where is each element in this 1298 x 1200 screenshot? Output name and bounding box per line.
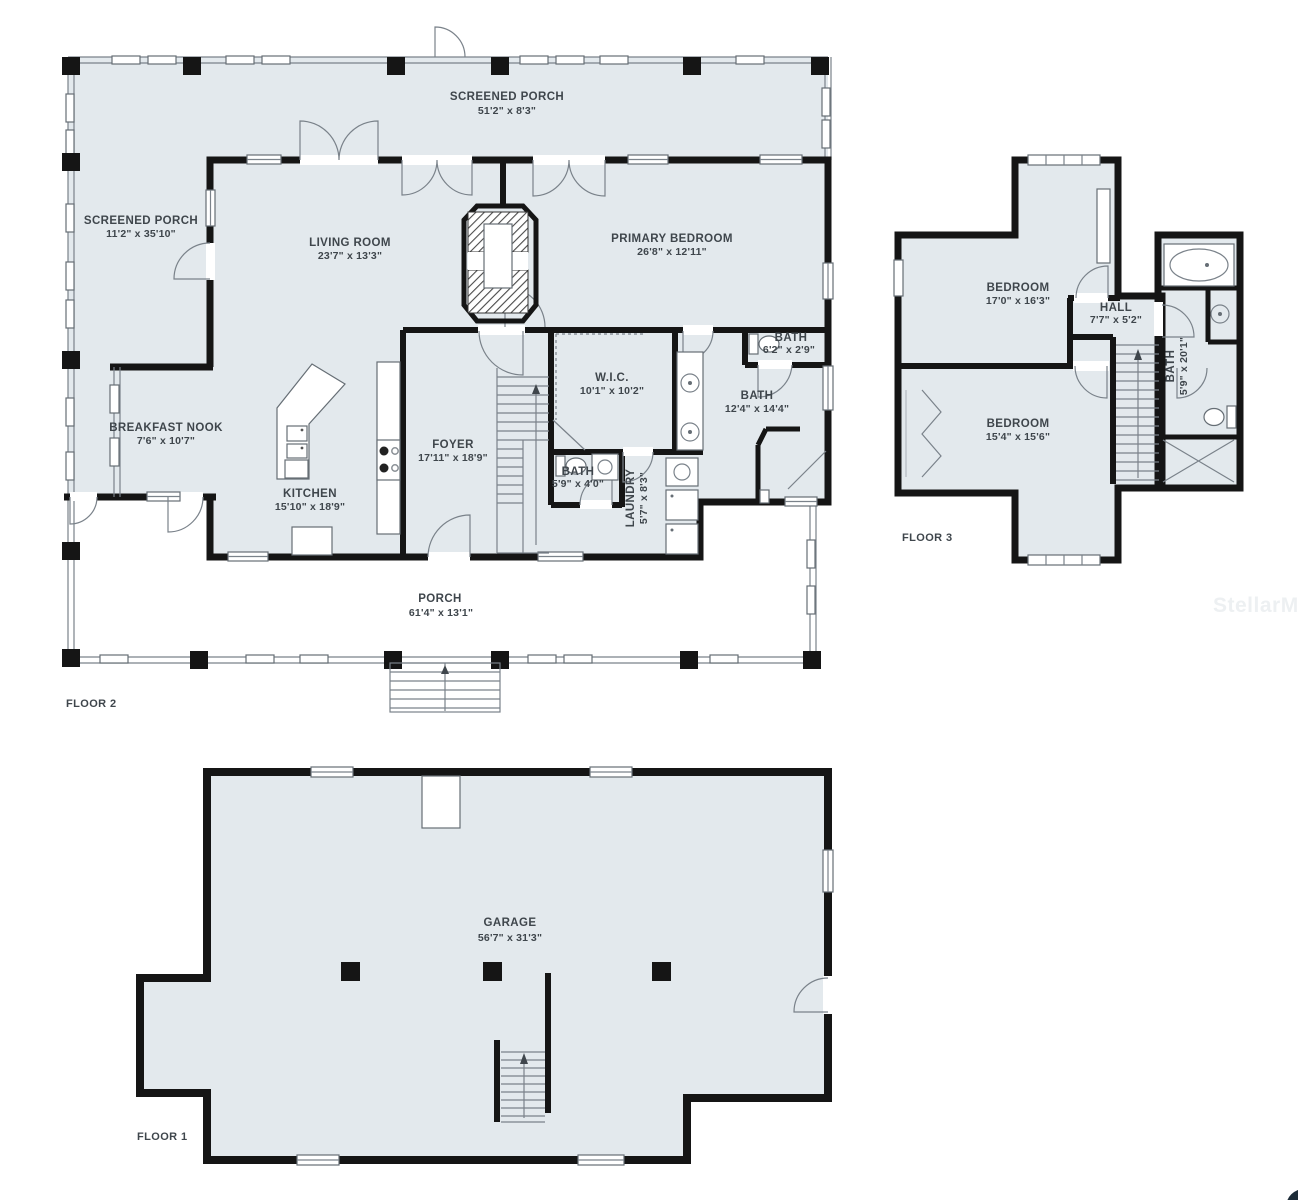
room-dims: 12'4" x 14'4" <box>725 403 789 415</box>
room-dims: 7'7" x 5'2" <box>1090 314 1142 326</box>
laundry-fixtures <box>666 458 698 554</box>
room-dims: 56'7" x 31'3" <box>478 932 542 944</box>
room-dims: 5'9" x 20'1" <box>1178 337 1190 395</box>
room-label: GARAGE <box>484 917 537 929</box>
corner-logo-mark <box>1286 1189 1298 1200</box>
room-dims: 15'4" x 15'6" <box>986 431 1050 443</box>
room-label: W.I.C. <box>595 372 629 384</box>
nook-window <box>110 385 119 413</box>
built-in <box>1097 189 1110 263</box>
room-dims: 7'6" x 10'7" <box>137 435 195 447</box>
fireplace <box>464 206 536 321</box>
porch-entry-steps <box>390 663 500 712</box>
floor3-plan: BEDROOM 17'0" x 16'3" HALL 7'7" x 5'2" B… <box>894 155 1240 565</box>
room-label: BEDROOM <box>987 418 1050 430</box>
room-dims: 5'9" x 4'0" <box>552 478 604 490</box>
room-label: PRIMARY BEDROOM <box>611 233 733 245</box>
room-label: SCREENED PORCH <box>84 215 198 227</box>
room-dims: 23'7" x 13'3" <box>318 250 382 262</box>
range-burners <box>377 440 400 480</box>
room-label: FOYER <box>432 439 474 451</box>
stellar-mls-watermark: StellarMLS <box>1213 594 1298 617</box>
floor1-plan: GARAGE 56'7" x 31'3" FLOOR 1 <box>137 767 833 1165</box>
room-label: BATH <box>1165 350 1177 383</box>
room-label: SCREENED PORCH <box>450 91 564 103</box>
room-dims: 51'2" x 8'3" <box>478 105 536 117</box>
floor2-label: FLOOR 2 <box>66 698 116 710</box>
room-label: HALL <box>1100 302 1132 314</box>
floor2-plan: SCREENED PORCH 51'2" x 8'3" SCREENED POR… <box>62 27 833 712</box>
room-label: BREAKFAST NOOK <box>109 422 223 434</box>
room-dims: 17'0" x 16'3" <box>986 295 1050 307</box>
room-dims: 10'1" x 10'2" <box>580 385 644 397</box>
room-label: PORCH <box>418 593 462 605</box>
floor2-floor-area <box>68 57 828 557</box>
floorplan-canvas: SCREENED PORCH 51'2" x 8'3" SCREENED POR… <box>0 0 1298 1200</box>
room-label: LIVING ROOM <box>309 237 391 249</box>
room-label: BATH <box>775 332 808 344</box>
room-dims: 11'2" x 35'10" <box>106 228 176 240</box>
room-label: BATH <box>741 390 774 402</box>
floor3-label: FLOOR 3 <box>902 532 952 544</box>
utility-closet <box>422 776 460 828</box>
room-label: BATH <box>562 466 595 478</box>
floor1-door-gap <box>823 976 833 1014</box>
room-label: LAUNDRY <box>625 469 637 528</box>
bathtub <box>1164 244 1234 286</box>
room-label: BEDROOM <box>987 282 1050 294</box>
room-dims: 61'4" x 13'1" <box>409 607 473 619</box>
floorplan-page: SCREENED PORCH 51'2" x 8'3" SCREENED POR… <box>0 0 1298 1200</box>
room-label: KITCHEN <box>283 488 337 500</box>
room-dims: 5'7" x 8'3" <box>638 472 650 524</box>
room-dims: 17'11" x 18'9" <box>418 452 488 464</box>
bath-vanity <box>677 352 703 450</box>
floor3-floor-area <box>898 160 1162 560</box>
floor1-label: FLOOR 1 <box>137 1131 187 1143</box>
room-dims: 15'10" x 18'9" <box>275 501 345 513</box>
room-dims: 6'2" x 2'9" <box>763 344 815 356</box>
nook-window <box>110 438 119 466</box>
room-dims: 26'8" x 12'11" <box>637 246 707 258</box>
